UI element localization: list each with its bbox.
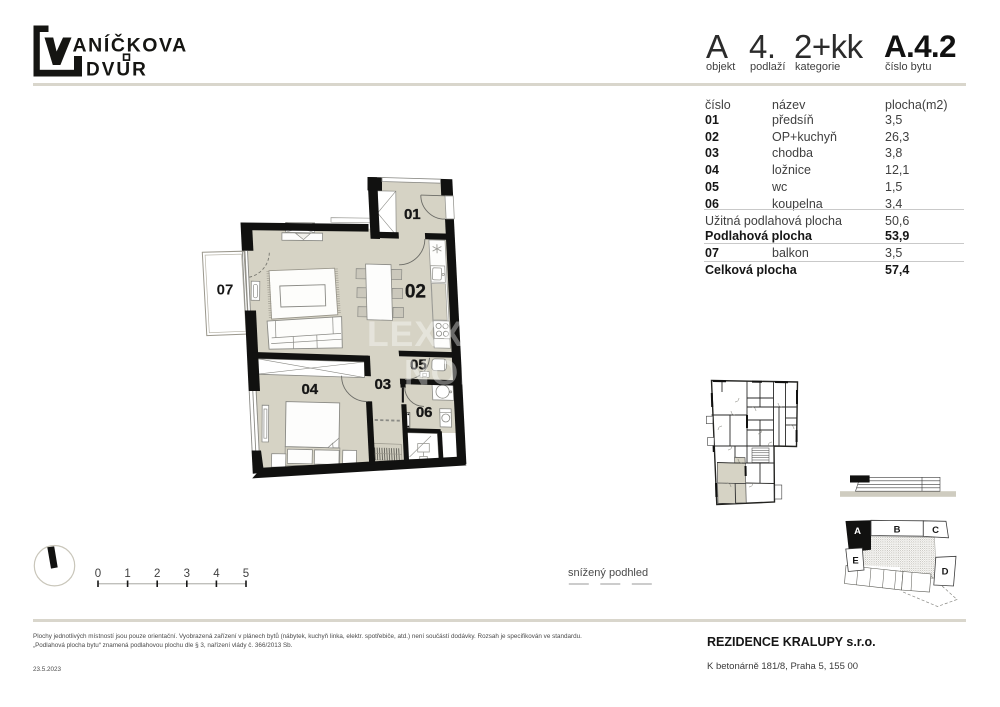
svg-text:C: C	[932, 525, 939, 536]
svg-text:04: 04	[301, 381, 318, 398]
svg-text:B: B	[894, 525, 901, 536]
svg-text:D: D	[942, 567, 949, 578]
svg-text:5: 5	[243, 568, 249, 580]
svg-text:E: E	[852, 556, 858, 567]
svg-text:01: 01	[404, 206, 421, 223]
svg-text:LEXXUS: LEXXUS	[367, 314, 515, 354]
svg-text:NORTON: NORTON	[404, 353, 563, 393]
svg-text:3: 3	[184, 568, 190, 580]
svg-text:03: 03	[374, 376, 391, 393]
svg-text:06: 06	[416, 404, 433, 421]
svg-text:0: 0	[95, 568, 101, 580]
svg-text:1: 1	[124, 568, 130, 580]
svg-text:2: 2	[154, 568, 160, 580]
svg-text:4: 4	[213, 568, 220, 580]
svg-text:07: 07	[217, 282, 234, 299]
svg-text:A: A	[854, 526, 861, 537]
svg-text:02: 02	[405, 282, 426, 303]
